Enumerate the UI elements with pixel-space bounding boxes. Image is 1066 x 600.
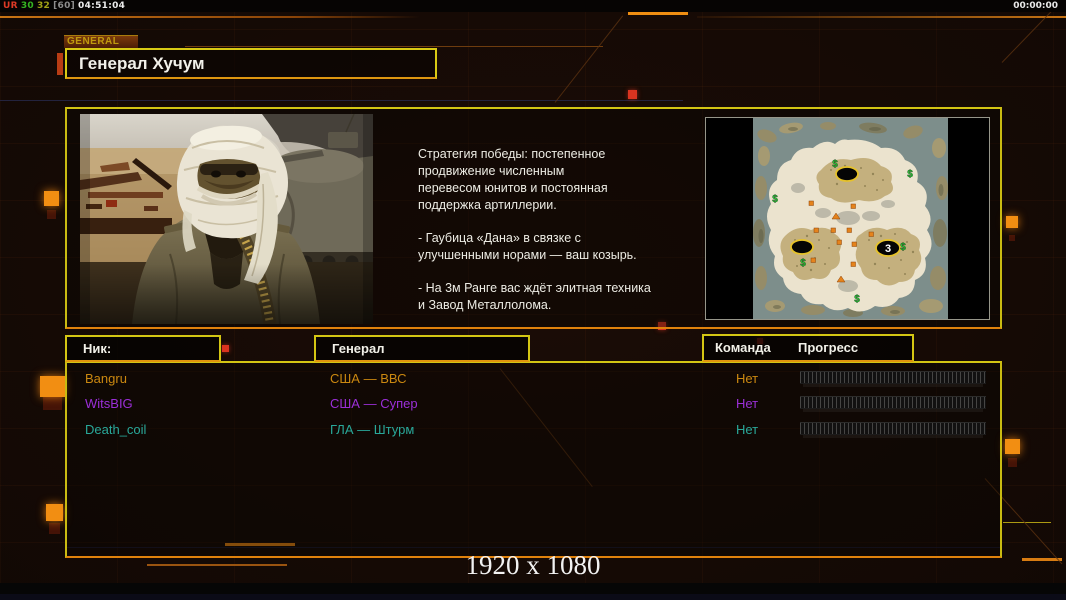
deco-orange-square <box>40 376 65 397</box>
progress-bar <box>800 422 986 435</box>
fps-max-value: 32 <box>37 1 50 11</box>
progress-bar <box>800 371 986 384</box>
roster-panel: Bangru США — ВВС Нет WitsBIG США — Супер… <box>65 361 1002 558</box>
player-general: ГЛА — Штурм <box>330 418 414 442</box>
fps-cap-value: [60] <box>53 1 75 11</box>
progress-bar <box>800 396 986 409</box>
player-team: Нет <box>736 418 758 442</box>
supply-dollar-icon: $ <box>772 194 778 205</box>
tab-general[interactable]: GENERAL <box>64 35 138 48</box>
deco-line <box>1003 522 1051 523</box>
table-row[interactable]: Bangru США — ВВС Нет <box>67 367 1000 391</box>
general-title-box: Генерал Хучум <box>65 48 437 79</box>
column-header-team-progress: Команда Прогресс <box>702 334 914 362</box>
player-nick: Bangru <box>85 367 127 391</box>
deco-red-square <box>628 90 637 99</box>
column-header-team: Команда <box>715 336 771 360</box>
deco-red-square <box>222 345 229 352</box>
briefing-text: Стратегия победы: постепенное продвижени… <box>418 146 698 330</box>
supply-dollar-icon: $ <box>832 159 838 170</box>
player-nick: WitsBIG <box>85 392 133 416</box>
deco-red-bar <box>57 53 63 75</box>
supply-dollar-icon: $ <box>800 258 806 269</box>
fps-ur-label: UR <box>3 1 18 11</box>
fps-value: 30 <box>21 1 34 11</box>
deco-line <box>185 46 603 47</box>
deco-orange-square <box>44 191 59 206</box>
deco-line <box>0 100 683 101</box>
start-position-3-label: 3 <box>885 243 891 255</box>
table-row[interactable]: Death_coil ГЛА — Штурм Нет <box>67 418 1000 442</box>
deco-line <box>0 16 420 18</box>
briefing-paragraph-3: - На 3м Ранге вас ждёт элитная техника и… <box>418 280 698 314</box>
deco-line <box>697 16 1066 18</box>
table-row[interactable]: WitsBIG США — Супер Нет <box>67 392 1000 416</box>
portrait-art <box>80 114 373 324</box>
deco-orange-square <box>46 504 63 521</box>
supply-dollar-icon: $ <box>854 294 860 305</box>
briefing-paragraph-1: Стратегия победы: постепенное продвижени… <box>418 146 698 214</box>
deco-orange-square <box>1006 216 1018 228</box>
minimap-frame: 3 $ $ $ $ $ $ <box>705 117 990 320</box>
supply-dollar-icon: $ <box>907 169 913 180</box>
player-general: США — Супер <box>330 392 418 416</box>
match-timer: 00:00:00 <box>1013 1 1058 11</box>
resolution-label: 1920 x 1080 <box>0 550 1066 581</box>
deco-orange-square <box>1005 439 1020 454</box>
general-portrait <box>80 114 373 324</box>
column-header-progress: Прогресс <box>798 336 858 360</box>
game-screen: UR3032[60]04:51:04 00:00:00 GENERAL Гене… <box>0 0 1066 600</box>
minimap-art: 3 $ $ $ $ $ $ <box>753 118 948 319</box>
bottom-navy-strip <box>0 594 1066 600</box>
supply-dollar-icon: $ <box>900 242 906 253</box>
column-header-nick: Ник: <box>65 335 221 362</box>
player-nick: Death_coil <box>85 418 146 442</box>
top-black-strip <box>0 0 1066 12</box>
player-general: США — ВВС <box>330 367 407 391</box>
briefing-paragraph-2: - Гаубица «Дана» в связке с улучшенными … <box>418 230 698 264</box>
column-header-general: Генерал <box>314 335 530 362</box>
fps-overlay: UR3032[60]04:51:04 <box>3 1 128 11</box>
session-time: 04:51:04 <box>78 1 125 11</box>
player-team: Нет <box>736 367 758 391</box>
deco-diagonal <box>555 16 624 103</box>
player-team: Нет <box>736 392 758 416</box>
